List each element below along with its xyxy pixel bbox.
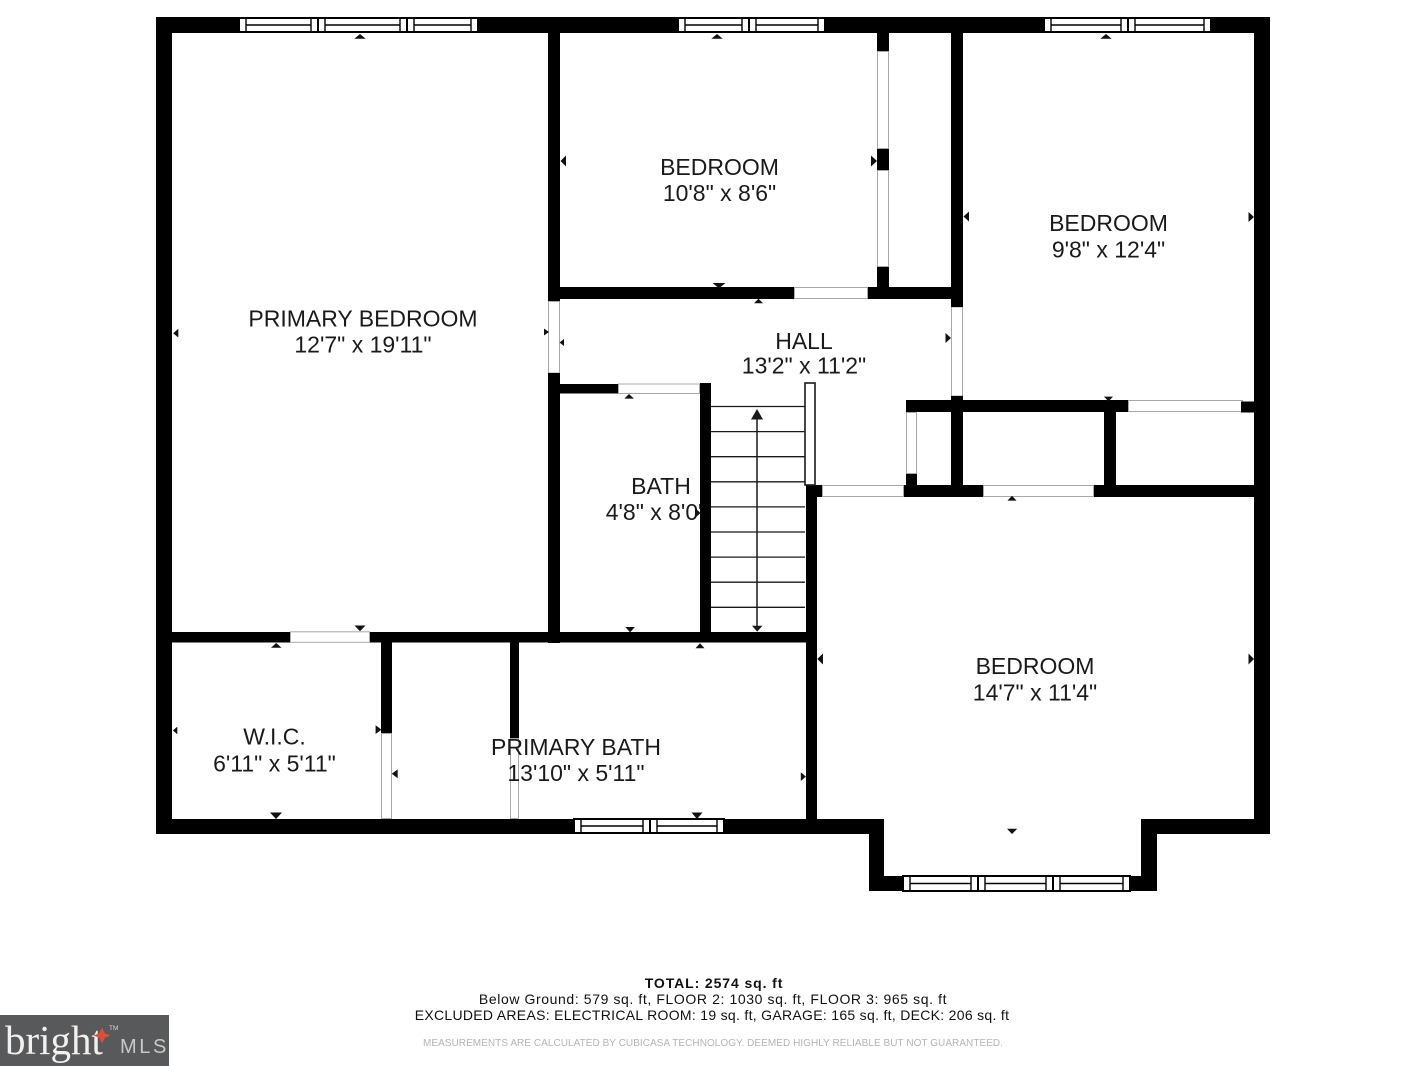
svg-text:MLS: MLS bbox=[120, 1036, 169, 1058]
svg-text:TM: TM bbox=[109, 1025, 118, 1032]
svg-text:4'8" x 8'0": 4'8" x 8'0" bbox=[606, 499, 707, 525]
svg-text:TOTAL: 2574 sq. ft: TOTAL: 2574 sq. ft bbox=[645, 975, 784, 991]
svg-text:13'10" x 5'11": 13'10" x 5'11" bbox=[507, 760, 644, 786]
svg-text:PRIMARY BEDROOM: PRIMARY BEDROOM bbox=[248, 306, 477, 332]
svg-text:MEASUREMENTS ARE CALCULATED BY: MEASUREMENTS ARE CALCULATED BY CUBICASA … bbox=[423, 1038, 1003, 1049]
svg-text:BEDROOM: BEDROOM bbox=[660, 154, 779, 180]
svg-text:14'7" x 11'4": 14'7" x 11'4" bbox=[973, 680, 1097, 706]
svg-text:BEDROOM: BEDROOM bbox=[1049, 210, 1168, 236]
svg-text:6'11" x 5'11": 6'11" x 5'11" bbox=[213, 751, 336, 777]
svg-text:EXCLUDED AREAS: ELECTRICAL ROO: EXCLUDED AREAS: ELECTRICAL ROOM: 19 sq. … bbox=[415, 1007, 1010, 1023]
svg-text:10'8" x 8'6": 10'8" x 8'6" bbox=[663, 180, 776, 206]
svg-text:13'2" x 11'2": 13'2" x 11'2" bbox=[742, 353, 866, 379]
svg-text:Below Ground: 579 sq. ft, FLOO: Below Ground: 579 sq. ft, FLOOR 2: 1030 … bbox=[479, 991, 947, 1007]
svg-text:12'7" x 19'11": 12'7" x 19'11" bbox=[294, 332, 431, 358]
svg-text:W.I.C.: W.I.C. bbox=[243, 724, 306, 750]
svg-text:9'8" x 12'4": 9'8" x 12'4" bbox=[1052, 237, 1165, 263]
svg-text:HALL: HALL bbox=[775, 328, 833, 354]
svg-text:bright: bright bbox=[5, 1017, 104, 1063]
svg-text:BATH: BATH bbox=[631, 473, 691, 499]
svg-text:BEDROOM: BEDROOM bbox=[976, 653, 1095, 679]
